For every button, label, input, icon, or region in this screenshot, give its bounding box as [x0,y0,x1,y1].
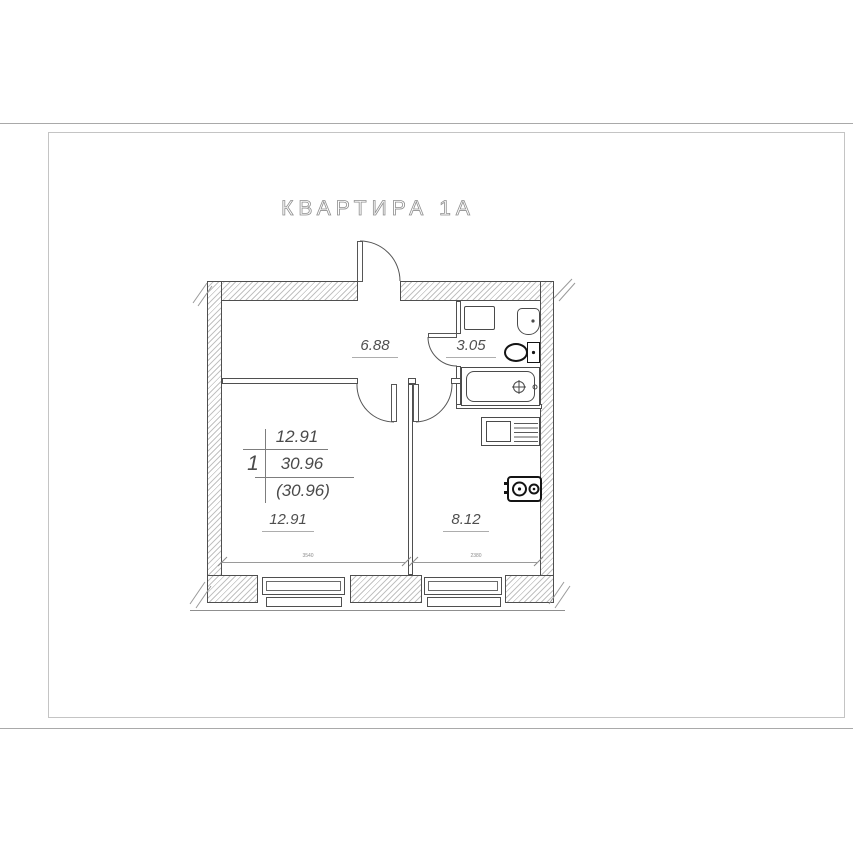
kitchen-door-arc [416,384,452,422]
room-label-kitchen: 8.12 [443,511,489,532]
apartment-title: КВАРТИРА 1А [238,197,518,221]
stamp-rooms-count: 1 [242,452,264,476]
room-label-bathroom: 3.05 [446,337,496,358]
stamp-line-1 [243,449,328,450]
entrance-door-arc [360,241,400,281]
fixture-dots [513,319,539,495]
room-label-living: 12.91 [262,511,314,532]
dimension-label-living: 3540 [290,553,326,559]
bathtub-drain-icon [512,380,537,394]
door-swing-arcs [357,241,457,422]
stamp-living-area: 12.91 [266,427,328,447]
plan-linework [0,0,853,853]
stamp-total-area-with-summer: (30.96) [264,481,342,501]
dimension-line-kitchen [413,562,538,563]
stamp-line-2 [255,477,354,478]
floor-plan-page: { "title": "КВАРТИРА 1А", "stamp": { "ro… [0,0,853,853]
dimension-label-kitchen: 2380 [458,553,494,559]
living-door-arc [357,384,394,422]
room-label-hall: 6.88 [352,337,398,358]
stamp-total-area: 30.96 [268,454,336,474]
wall-break-marks [190,279,575,608]
dimension-line-living [222,562,406,563]
